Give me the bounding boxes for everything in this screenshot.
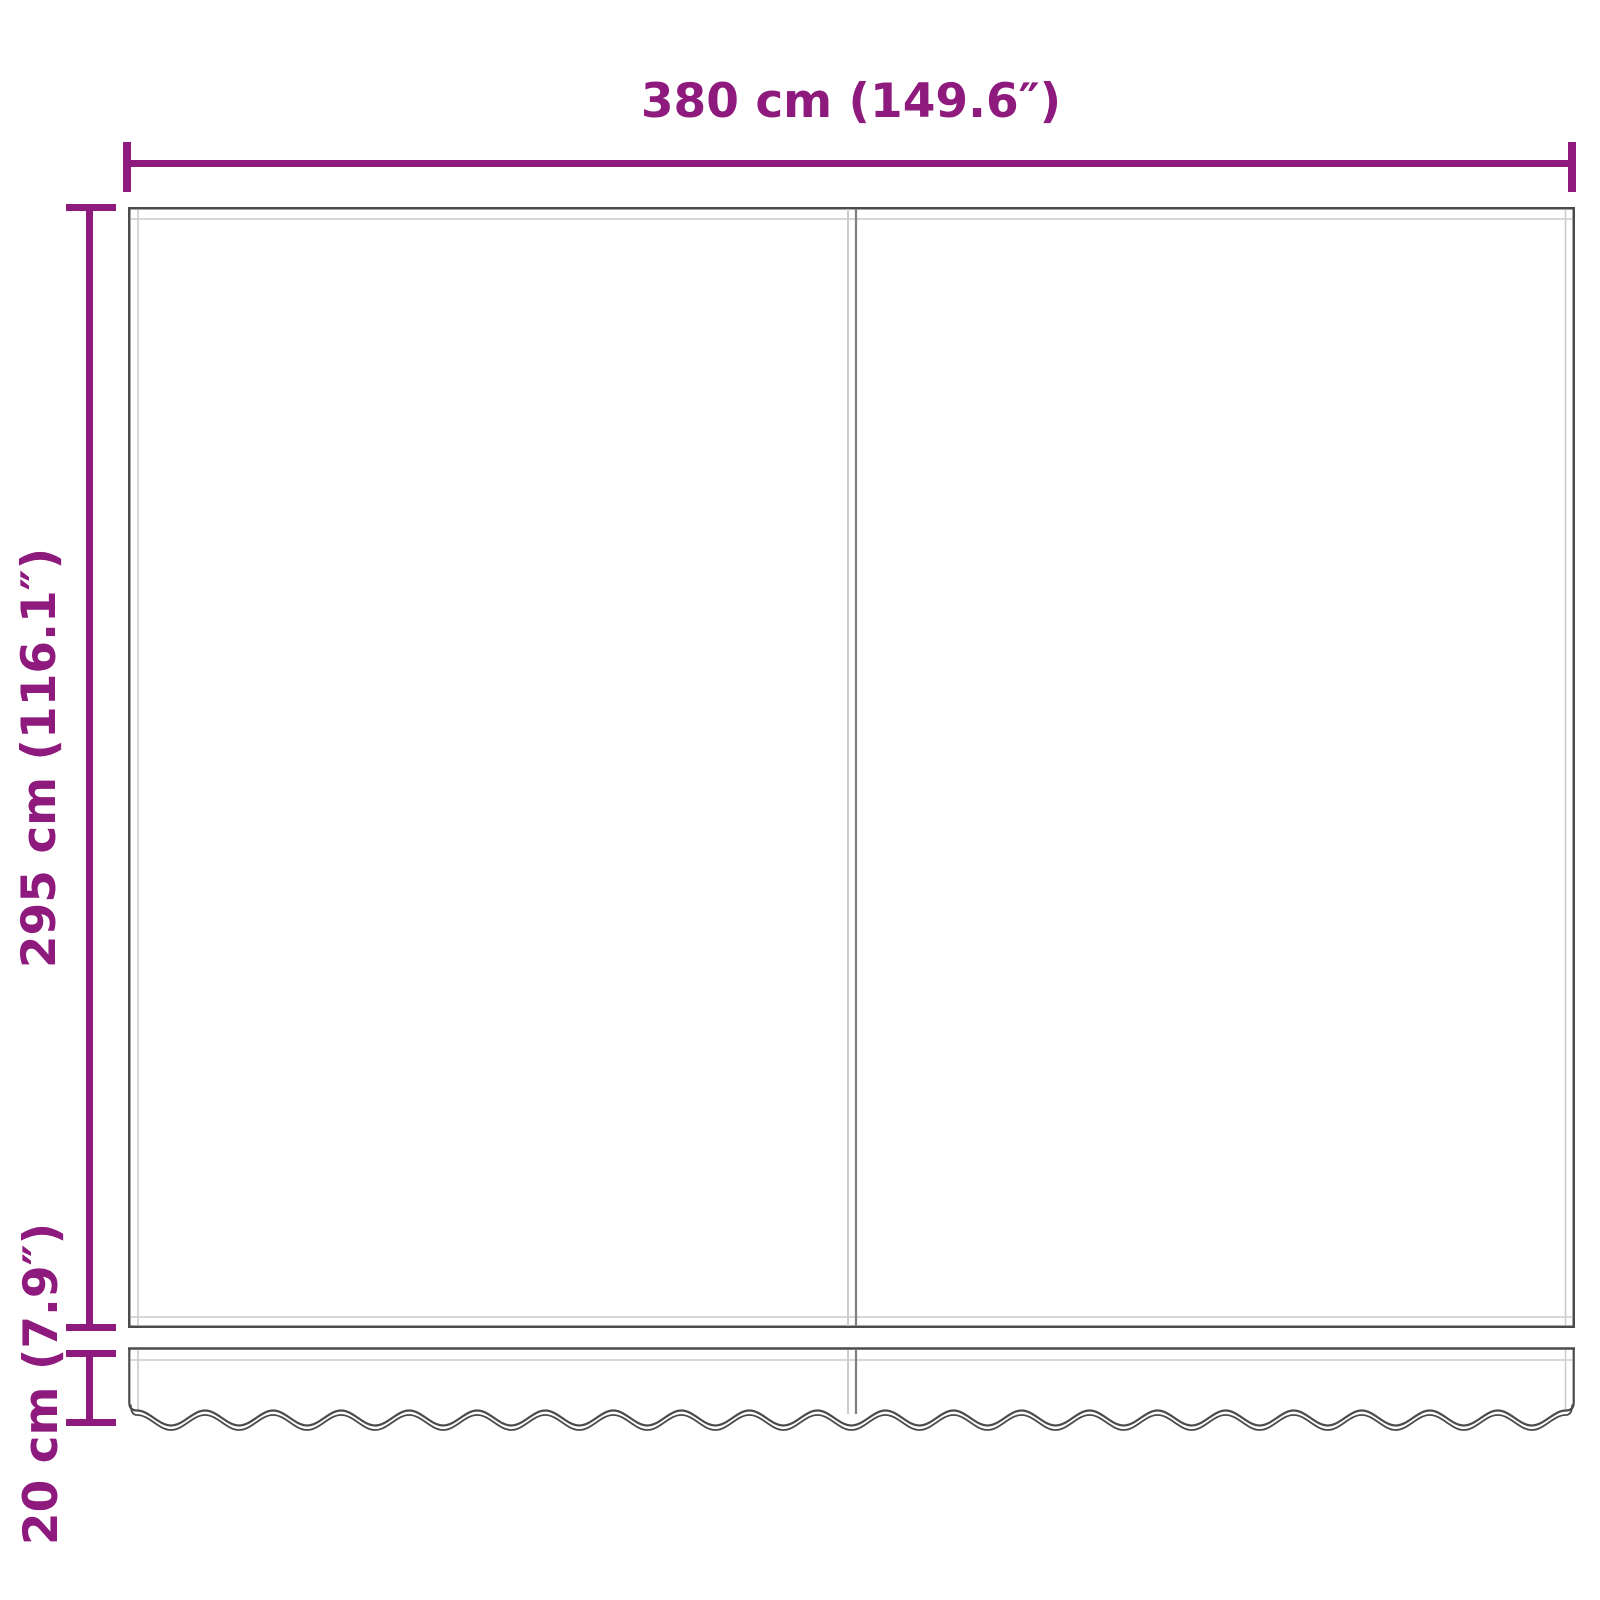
- valance-dimension-label: 20 cm (7.9″): [16, 1184, 68, 1584]
- height-dimension-tick-top: [66, 204, 116, 211]
- valance-dimension-line: [86, 1350, 93, 1426]
- awning-fabric-drawing: [0, 0, 1600, 1600]
- width-dimension-tick-right: [1568, 142, 1576, 192]
- valance-dimension-tick-top: [66, 1350, 116, 1357]
- height-dimension-line: [86, 205, 93, 1330]
- height-dimension-label: 295 cm (116.1″): [14, 458, 66, 1058]
- height-dimension-tick-bottom: [66, 1324, 116, 1331]
- width-dimension-tick-left: [123, 142, 131, 192]
- fabric-panel-outline: [129, 208, 1574, 1327]
- width-dimension-line: [126, 160, 1572, 167]
- valance-dimension-tick-bottom: [66, 1419, 116, 1426]
- dimension-diagram: 380 cm (149.6″) 295 cm (116.1″) 20 cm (7…: [0, 0, 1600, 1600]
- width-dimension-label: 380 cm (149.6″): [128, 76, 1574, 128]
